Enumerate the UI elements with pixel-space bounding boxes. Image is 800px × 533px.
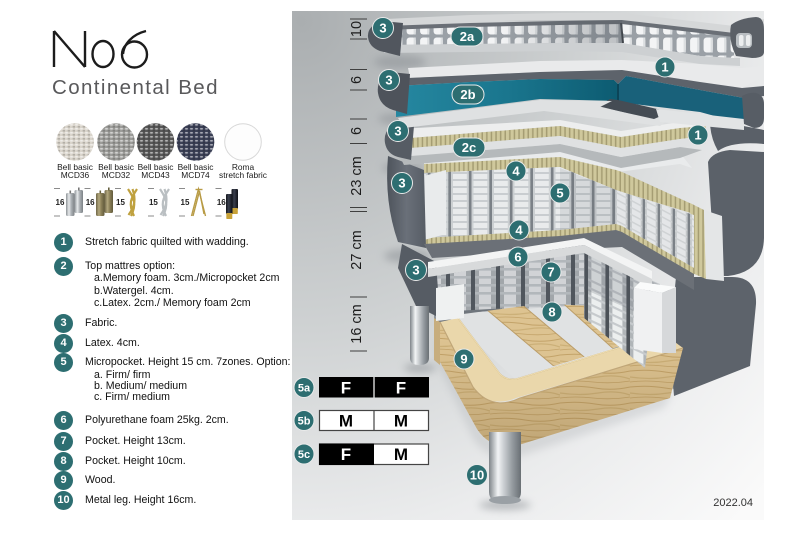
svg-text:10: 10 <box>349 21 365 37</box>
svg-text:F: F <box>396 379 406 398</box>
svg-text:4: 4 <box>512 164 520 179</box>
svg-text:6: 6 <box>349 76 365 84</box>
svg-text:F: F <box>341 379 351 398</box>
svg-text:5b: 5b <box>298 416 311 428</box>
svg-text:3: 3 <box>385 73 392 88</box>
svg-text:23 cm: 23 cm <box>349 156 365 196</box>
svg-text:6: 6 <box>514 250 521 265</box>
svg-text:16 cm: 16 cm <box>349 304 365 344</box>
svg-text:M: M <box>339 412 353 431</box>
svg-text:5a: 5a <box>298 383 311 395</box>
svg-text:15: 15 <box>181 198 190 207</box>
svg-text:2b: 2b <box>460 87 475 102</box>
svg-text:3: 3 <box>394 124 401 139</box>
svg-text:8: 8 <box>548 305 555 320</box>
svg-text:M: M <box>394 412 408 431</box>
svg-text:1: 1 <box>661 60 668 75</box>
svg-text:10: 10 <box>470 468 484 483</box>
svg-text:2c: 2c <box>462 140 476 155</box>
svg-text:F: F <box>341 445 351 464</box>
svg-text:5c: 5c <box>298 449 310 461</box>
svg-text:2022.04: 2022.04 <box>713 497 753 509</box>
svg-text:9: 9 <box>460 352 467 367</box>
svg-text:5: 5 <box>556 186 563 201</box>
svg-text:1: 1 <box>694 128 701 143</box>
svg-text:M: M <box>394 445 408 464</box>
svg-text:15: 15 <box>149 198 158 207</box>
svg-text:16: 16 <box>86 198 95 207</box>
svg-text:2a: 2a <box>460 29 475 44</box>
svg-text:27 cm: 27 cm <box>349 230 365 270</box>
svg-text:6: 6 <box>349 127 365 135</box>
svg-text:7: 7 <box>547 265 554 280</box>
svg-text:4: 4 <box>515 223 523 238</box>
svg-text:3: 3 <box>398 176 405 191</box>
svg-text:16: 16 <box>217 198 226 207</box>
svg-text:3: 3 <box>379 21 386 36</box>
svg-text:15: 15 <box>116 198 125 207</box>
svg-text:3: 3 <box>412 263 419 278</box>
svg-text:16: 16 <box>56 198 65 207</box>
